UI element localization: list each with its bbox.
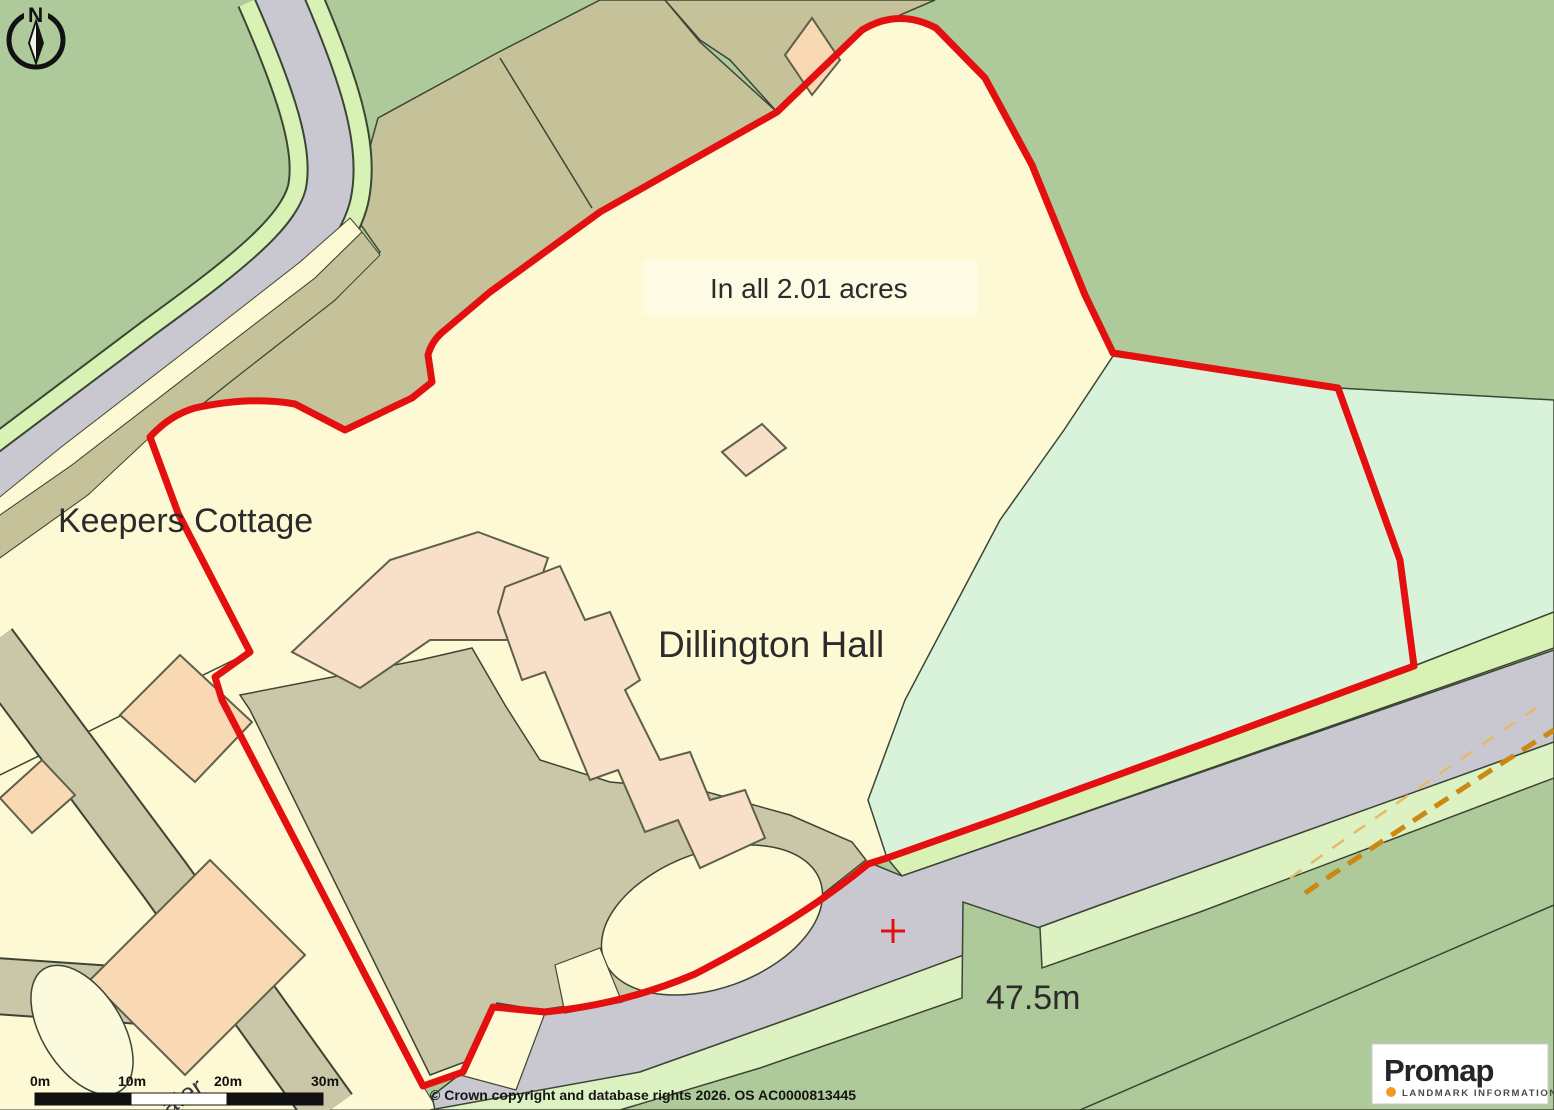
scale-tick-10: 10m [118,1073,146,1089]
map-viewport: In all 2.01 acres Keepers Cottage Dillin… [0,0,1554,1110]
promap-logo-tagline: LANDMARK INFORMATION [1402,1088,1554,1099]
spot-height-label: 47.5m [986,979,1081,1017]
north-letter: N [28,4,43,27]
keepers-cottage-label: Keepers Cottage [58,502,313,540]
promap-logo-dot-icon [1386,1087,1396,1097]
scale-tick-0: 0m [30,1073,50,1089]
area-statement-label: In all 2.01 acres [710,273,908,304]
promap-logo: Promap LANDMARK INFORMATION [1372,1044,1554,1104]
hall-name-label: Dillington Hall [658,624,884,665]
scale-tick-30: 30m [311,1073,339,1089]
promap-logo-name: Promap [1384,1053,1493,1088]
map-canvas: In all 2.01 acres Keepers Cottage Dillin… [0,0,1554,1110]
scale-tick-20: 20m [214,1073,242,1089]
copyright-text: © Crown copyright and database rights 20… [430,1087,856,1103]
